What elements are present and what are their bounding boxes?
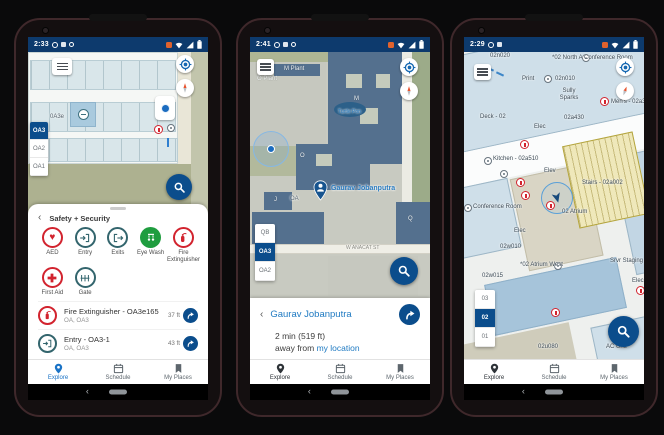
pin-icon: [489, 363, 500, 374]
first-aid-icon: [42, 267, 63, 288]
category-first-aid[interactable]: First Aid: [36, 267, 69, 297]
clock: 2:33: [34, 41, 49, 48]
compass-icon: [179, 82, 191, 94]
eye-wash-icon: [140, 227, 161, 248]
front-camera: [478, 27, 485, 34]
bookmark-icon: [609, 363, 620, 374]
status-left: 2:33: [34, 41, 74, 48]
result-subtitle: OA, OA3: [64, 317, 161, 324]
android-back-icon[interactable]: ‹: [308, 387, 311, 396]
alarm-icon: [488, 42, 494, 48]
exit-icon: [107, 227, 128, 248]
speaker: [525, 14, 583, 21]
aed-icon: ♥: [42, 227, 63, 248]
map-label: Stairs - 02a002: [582, 180, 623, 187]
building: [296, 144, 370, 190]
highlighted-room[interactable]: [70, 102, 96, 127]
status-bar: 2:41: [250, 37, 430, 52]
category-eye-wash[interactable]: Eye Wash: [134, 227, 167, 264]
floor-picker: 03 02 01: [475, 290, 495, 347]
map-label: Elec: [514, 228, 526, 235]
calendar-icon: [113, 363, 124, 374]
floor-OA3[interactable]: OA3: [255, 243, 275, 262]
calendar-icon: [335, 363, 346, 374]
map-label: Deck - 02: [480, 114, 506, 121]
menu-button[interactable]: [52, 58, 72, 75]
map-label: Kitchen - 02a510: [493, 156, 538, 163]
status-left: 2:29: [470, 41, 502, 48]
tab-my-places[interactable]: My Places: [584, 360, 644, 384]
map-label: 02w015: [482, 273, 503, 280]
campus-map[interactable]: M Plant O Plant M Turtle Pon O J OA Q W …: [250, 52, 430, 298]
phone-2-screen: 2:41: [250, 37, 430, 400]
person-name[interactable]: Gaurav Jobanputra: [270, 309, 351, 320]
battery-icon: [633, 40, 638, 49]
map-label: 02 Atrium: [562, 209, 587, 216]
android-home-pill[interactable]: [331, 390, 349, 395]
wifi-icon: [611, 41, 619, 49]
android-nav: ‹: [28, 384, 208, 400]
eta-text: 2 min (519 ft): [275, 331, 420, 341]
tab-explore[interactable]: Explore: [464, 360, 524, 384]
status-bar: 2:29: [464, 37, 644, 52]
map-label: 02n010: [555, 76, 575, 83]
directions-icon: [186, 339, 195, 348]
notification-icon: [283, 42, 288, 47]
menu-button[interactable]: [474, 64, 491, 80]
category-gate[interactable]: Gate: [69, 267, 102, 297]
app-notification-icon: [291, 42, 296, 47]
search-button[interactable]: [608, 316, 639, 347]
tab-explore[interactable]: Explore: [250, 360, 310, 384]
search-icon: [616, 324, 631, 339]
result-title: Fire Extinguisher - OA3e165: [64, 307, 161, 316]
safety-map-icon[interactable]: [546, 201, 555, 210]
results-list: Fire Extinguisher - OA3e165 OA, OA3 37 f…: [28, 301, 208, 359]
android-back-icon[interactable]: ‹: [86, 387, 89, 396]
tab-schedule[interactable]: Schedule: [88, 360, 148, 384]
my-location-button[interactable]: [400, 58, 418, 76]
map-label: Sully Sparks: [556, 88, 582, 101]
blue-dot-icon: [267, 145, 275, 153]
category-exits[interactable]: Exits: [101, 227, 134, 264]
map-label: Elec: [632, 278, 644, 285]
locate-icon: [179, 58, 192, 71]
safety-map-icon[interactable]: [600, 97, 609, 106]
tab-schedule[interactable]: Schedule: [310, 360, 370, 384]
phone-1: 2:33: [14, 18, 222, 417]
safety-map-icon[interactable]: [516, 178, 525, 187]
floor-03[interactable]: 03: [475, 290, 495, 309]
android-nav: ‹: [250, 384, 430, 400]
status-right: [602, 40, 638, 49]
front-camera: [42, 27, 49, 34]
panel-title: Safety + Security: [49, 214, 110, 223]
list-item[interactable]: Fire Extinguisher - OA3e165 OA, OA3 37 f…: [38, 301, 198, 329]
safety-map-icon[interactable]: [636, 286, 644, 295]
floor-01[interactable]: 01: [475, 328, 495, 347]
directions-button[interactable]: [399, 304, 420, 325]
screenshot-canvas: 2:33: [0, 0, 664, 435]
search-icon: [173, 181, 186, 194]
map-label: Conference Room: [473, 204, 522, 211]
map-label: M Plant: [284, 66, 304, 73]
safety-security-panel: ‹ Safety + Security ♥ AED Entry: [28, 204, 208, 359]
wifi-icon: [397, 41, 405, 49]
street-label: W ANACAT ST: [346, 246, 379, 252]
my-location-button[interactable]: [176, 55, 194, 73]
result-distance: 37 ft: [168, 312, 180, 319]
phone-2: 2:41: [236, 18, 444, 417]
floor-picker: QB OA3 OA2: [255, 224, 275, 281]
speaker: [311, 14, 369, 21]
compass-icon: [617, 83, 632, 98]
map-label: M: [354, 96, 359, 103]
status-left: 2:41: [256, 41, 296, 48]
map-label: Elec: [534, 124, 546, 131]
signal-icon: [186, 41, 194, 49]
category-entry[interactable]: Entry: [69, 227, 102, 264]
map-label: 02n020: [490, 53, 510, 60]
status-bar: 2:33: [28, 37, 208, 52]
building: [264, 192, 292, 210]
notification-icon: [61, 42, 66, 47]
entry-icon: [75, 227, 96, 248]
safety-map-icon[interactable]: [520, 140, 529, 149]
locate-icon: [619, 61, 632, 74]
front-camera: [264, 27, 271, 34]
map-label: Srvr Staging: [610, 258, 643, 265]
compass-button[interactable]: [176, 79, 194, 97]
result-subtitle: OA, OA3: [64, 345, 161, 352]
map-label: Q: [408, 216, 413, 223]
pin-icon: [53, 363, 64, 374]
map-label: Elev: [544, 168, 556, 175]
map-shape: [30, 138, 178, 162]
menu-button[interactable]: [257, 59, 274, 75]
printer-map-icon[interactable]: [544, 75, 552, 83]
battery-icon: [419, 40, 424, 49]
android-home-pill[interactable]: [109, 390, 127, 395]
compass-icon: [403, 85, 415, 97]
indoor-map[interactable]: 02n020 *02 North A Conference Room Print…: [464, 52, 644, 359]
screenshot-icon: [602, 42, 608, 48]
screenshot-icon: [388, 42, 394, 48]
compass-button[interactable]: [400, 82, 418, 100]
map-label: 02u080: [538, 344, 558, 351]
floor-OA1[interactable]: OA1: [30, 158, 48, 176]
indoor-map[interactable]: 0A3e OA3 OA2 OA1: [28, 52, 208, 214]
search-icon: [397, 264, 411, 278]
map-label: Print: [522, 76, 534, 83]
floor-OA3[interactable]: OA3: [30, 122, 48, 140]
person-marker[interactable]: [313, 180, 328, 201]
street: [250, 244, 430, 254]
room-label: 0A3e: [50, 114, 64, 121]
map-label: OA: [290, 196, 299, 203]
calendar-icon: [549, 363, 560, 374]
clock: 2:41: [256, 41, 271, 48]
safety-map-icon[interactable]: [521, 191, 530, 200]
android-nav: ‹: [464, 384, 644, 400]
room-map-icon[interactable]: [484, 157, 492, 165]
entry-icon: [38, 334, 57, 353]
back-icon[interactable]: ‹: [260, 310, 263, 320]
safety-map-icon[interactable]: [551, 308, 560, 317]
tab-explore[interactable]: Explore: [28, 360, 88, 384]
bottom-nav: Explore Schedule My Places: [250, 359, 430, 384]
map-label: J: [274, 197, 277, 204]
search-button[interactable]: [390, 257, 418, 285]
away-text: away from my location: [275, 343, 420, 353]
floor-QB[interactable]: QB: [255, 224, 275, 243]
back-icon[interactable]: ‹: [38, 213, 41, 223]
bookmark-icon: [173, 363, 184, 374]
signal-icon: [622, 41, 630, 49]
map-shape: [191, 52, 208, 214]
pin-icon: [275, 363, 286, 374]
map-label: *02 Atrium West: [520, 262, 563, 269]
floor-02[interactable]: 02: [475, 309, 495, 328]
phone-3-screen: 2:29: [464, 37, 644, 400]
map-label: 02w010: [500, 244, 521, 251]
result-title: Entry - OA3-1: [64, 335, 161, 344]
fire-extinguisher-map-icon[interactable]: [154, 125, 163, 134]
directions-icon: [404, 309, 416, 321]
map-label: O Plant: [257, 76, 277, 83]
fire-extinguisher-icon: [173, 227, 194, 248]
building: [396, 202, 430, 246]
room-status-icon: [78, 109, 89, 120]
bookmark-icon: [395, 363, 406, 374]
fire-extinguisher-icon: [38, 306, 57, 325]
gate-icon: [75, 267, 96, 288]
person-map-icon[interactable]: [500, 170, 508, 178]
bottom-nav: Explore Schedule My Places: [464, 359, 644, 384]
tab-my-places[interactable]: My Places: [370, 360, 430, 384]
map-shape: [412, 52, 430, 202]
floor-OA2[interactable]: OA2: [255, 262, 275, 281]
directions-icon: [186, 311, 195, 320]
alarm-icon: [52, 42, 58, 48]
map-label: Turtle Pon: [338, 110, 361, 116]
android-home-pill[interactable]: [545, 390, 563, 395]
clock: 2:29: [470, 41, 485, 48]
blue-dot-icon: [161, 104, 170, 113]
directions-button[interactable]: [183, 336, 198, 351]
list-item[interactable]: Entry - OA3-1 OA, OA3 43 ft: [38, 329, 198, 357]
person-panel: ‹ Gaurav Jobanputra 2 min (519 ft) away …: [250, 298, 430, 359]
location-callout: [155, 96, 175, 120]
app-notification-icon: [69, 42, 74, 47]
signal-icon: [408, 41, 416, 49]
alarm-icon: [274, 42, 280, 48]
status-right: [388, 40, 424, 49]
tab-my-places[interactable]: My Places: [148, 360, 208, 384]
tab-schedule[interactable]: Schedule: [524, 360, 584, 384]
wifi-icon: [175, 41, 183, 49]
screenshot-icon: [166, 42, 172, 48]
phone-1-screen: 2:33: [28, 37, 208, 400]
directions-button[interactable]: [183, 308, 198, 323]
room-map-icon[interactable]: [464, 204, 472, 212]
map-label: 02a430: [564, 115, 584, 122]
cluster-map-icon[interactable]: [167, 124, 175, 132]
status-right: [166, 40, 202, 49]
battery-icon: [197, 40, 202, 49]
speaker: [89, 14, 147, 21]
category-fire-extinguisher[interactable]: Fire Extinguisher: [167, 227, 200, 264]
locate-icon: [403, 61, 416, 74]
phone-3: 2:29: [450, 18, 658, 417]
map-label: Men's - 02a33: [611, 99, 644, 106]
result-distance: 43 ft: [168, 340, 180, 347]
android-back-icon[interactable]: ‹: [522, 387, 525, 396]
my-location-button[interactable]: [616, 58, 634, 76]
floor-picker: OA3 OA2 OA1: [30, 122, 48, 176]
map-label: O: [300, 153, 305, 160]
map-shape: [167, 138, 169, 147]
my-location-link[interactable]: my location: [317, 343, 360, 353]
category-grid: ♥ AED Entry Exits: [28, 225, 208, 301]
bottom-nav: Explore Schedule My Places: [28, 359, 208, 384]
category-aed[interactable]: ♥ AED: [36, 227, 69, 264]
marker-label: Gaurav Jobanputra: [331, 185, 395, 193]
compass-button[interactable]: [616, 82, 634, 100]
notification-icon: [497, 42, 502, 47]
floor-OA2[interactable]: OA2: [30, 140, 48, 158]
